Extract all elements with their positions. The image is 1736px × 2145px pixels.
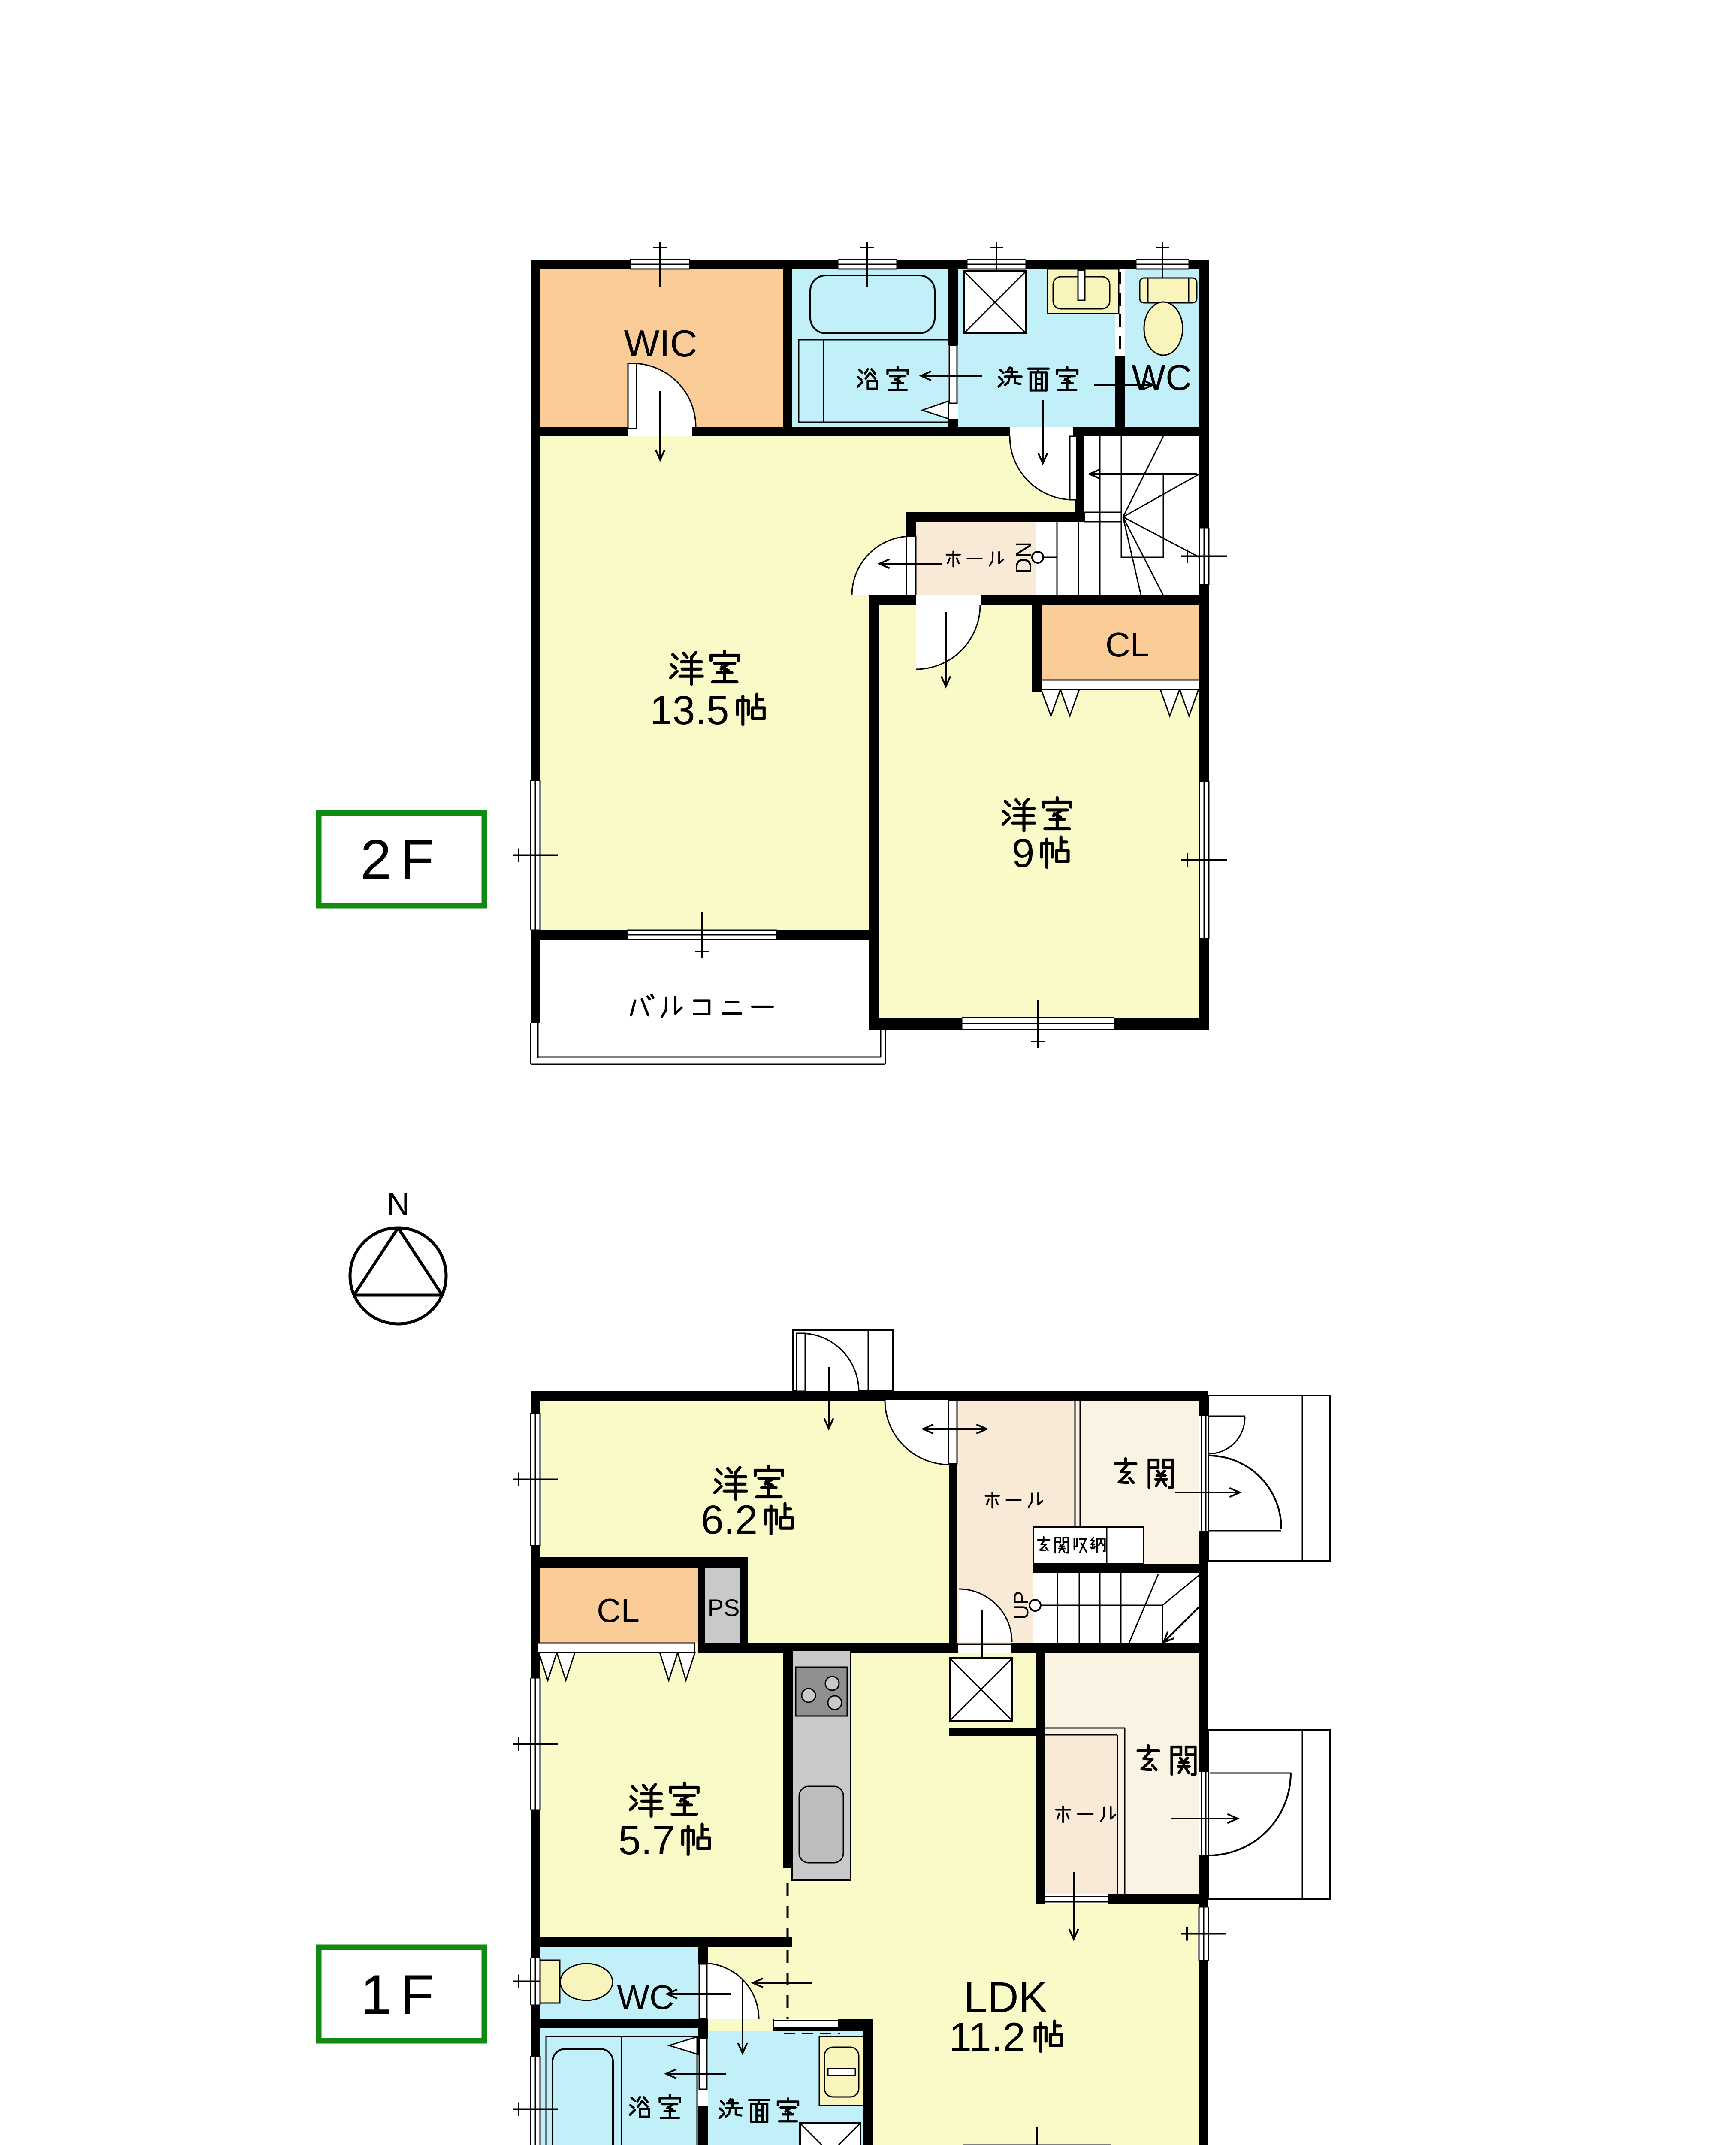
svg-text:WC: WC	[1132, 357, 1192, 398]
svg-text:CL: CL	[597, 1592, 640, 1629]
svg-text:DN: DN	[1011, 541, 1036, 574]
svg-text:PS: PS	[708, 1594, 740, 1621]
svg-text:5.7: 5.7	[618, 1818, 675, 1863]
svg-text:WC: WC	[617, 1978, 674, 2016]
svg-text:WIC: WIC	[624, 322, 697, 365]
svg-text:UP: UP	[1010, 1591, 1033, 1620]
svg-text:11.2: 11.2	[949, 2015, 1025, 2060]
svg-text:N: N	[386, 1186, 409, 1222]
svg-text:6.2: 6.2	[701, 1497, 758, 1543]
svg-text:1F: 1F	[360, 1963, 443, 2026]
svg-text:2F: 2F	[360, 828, 443, 891]
svg-text:CL: CL	[1105, 625, 1149, 664]
svg-text:13.5: 13.5	[650, 688, 729, 733]
svg-text:9: 9	[1012, 831, 1035, 876]
